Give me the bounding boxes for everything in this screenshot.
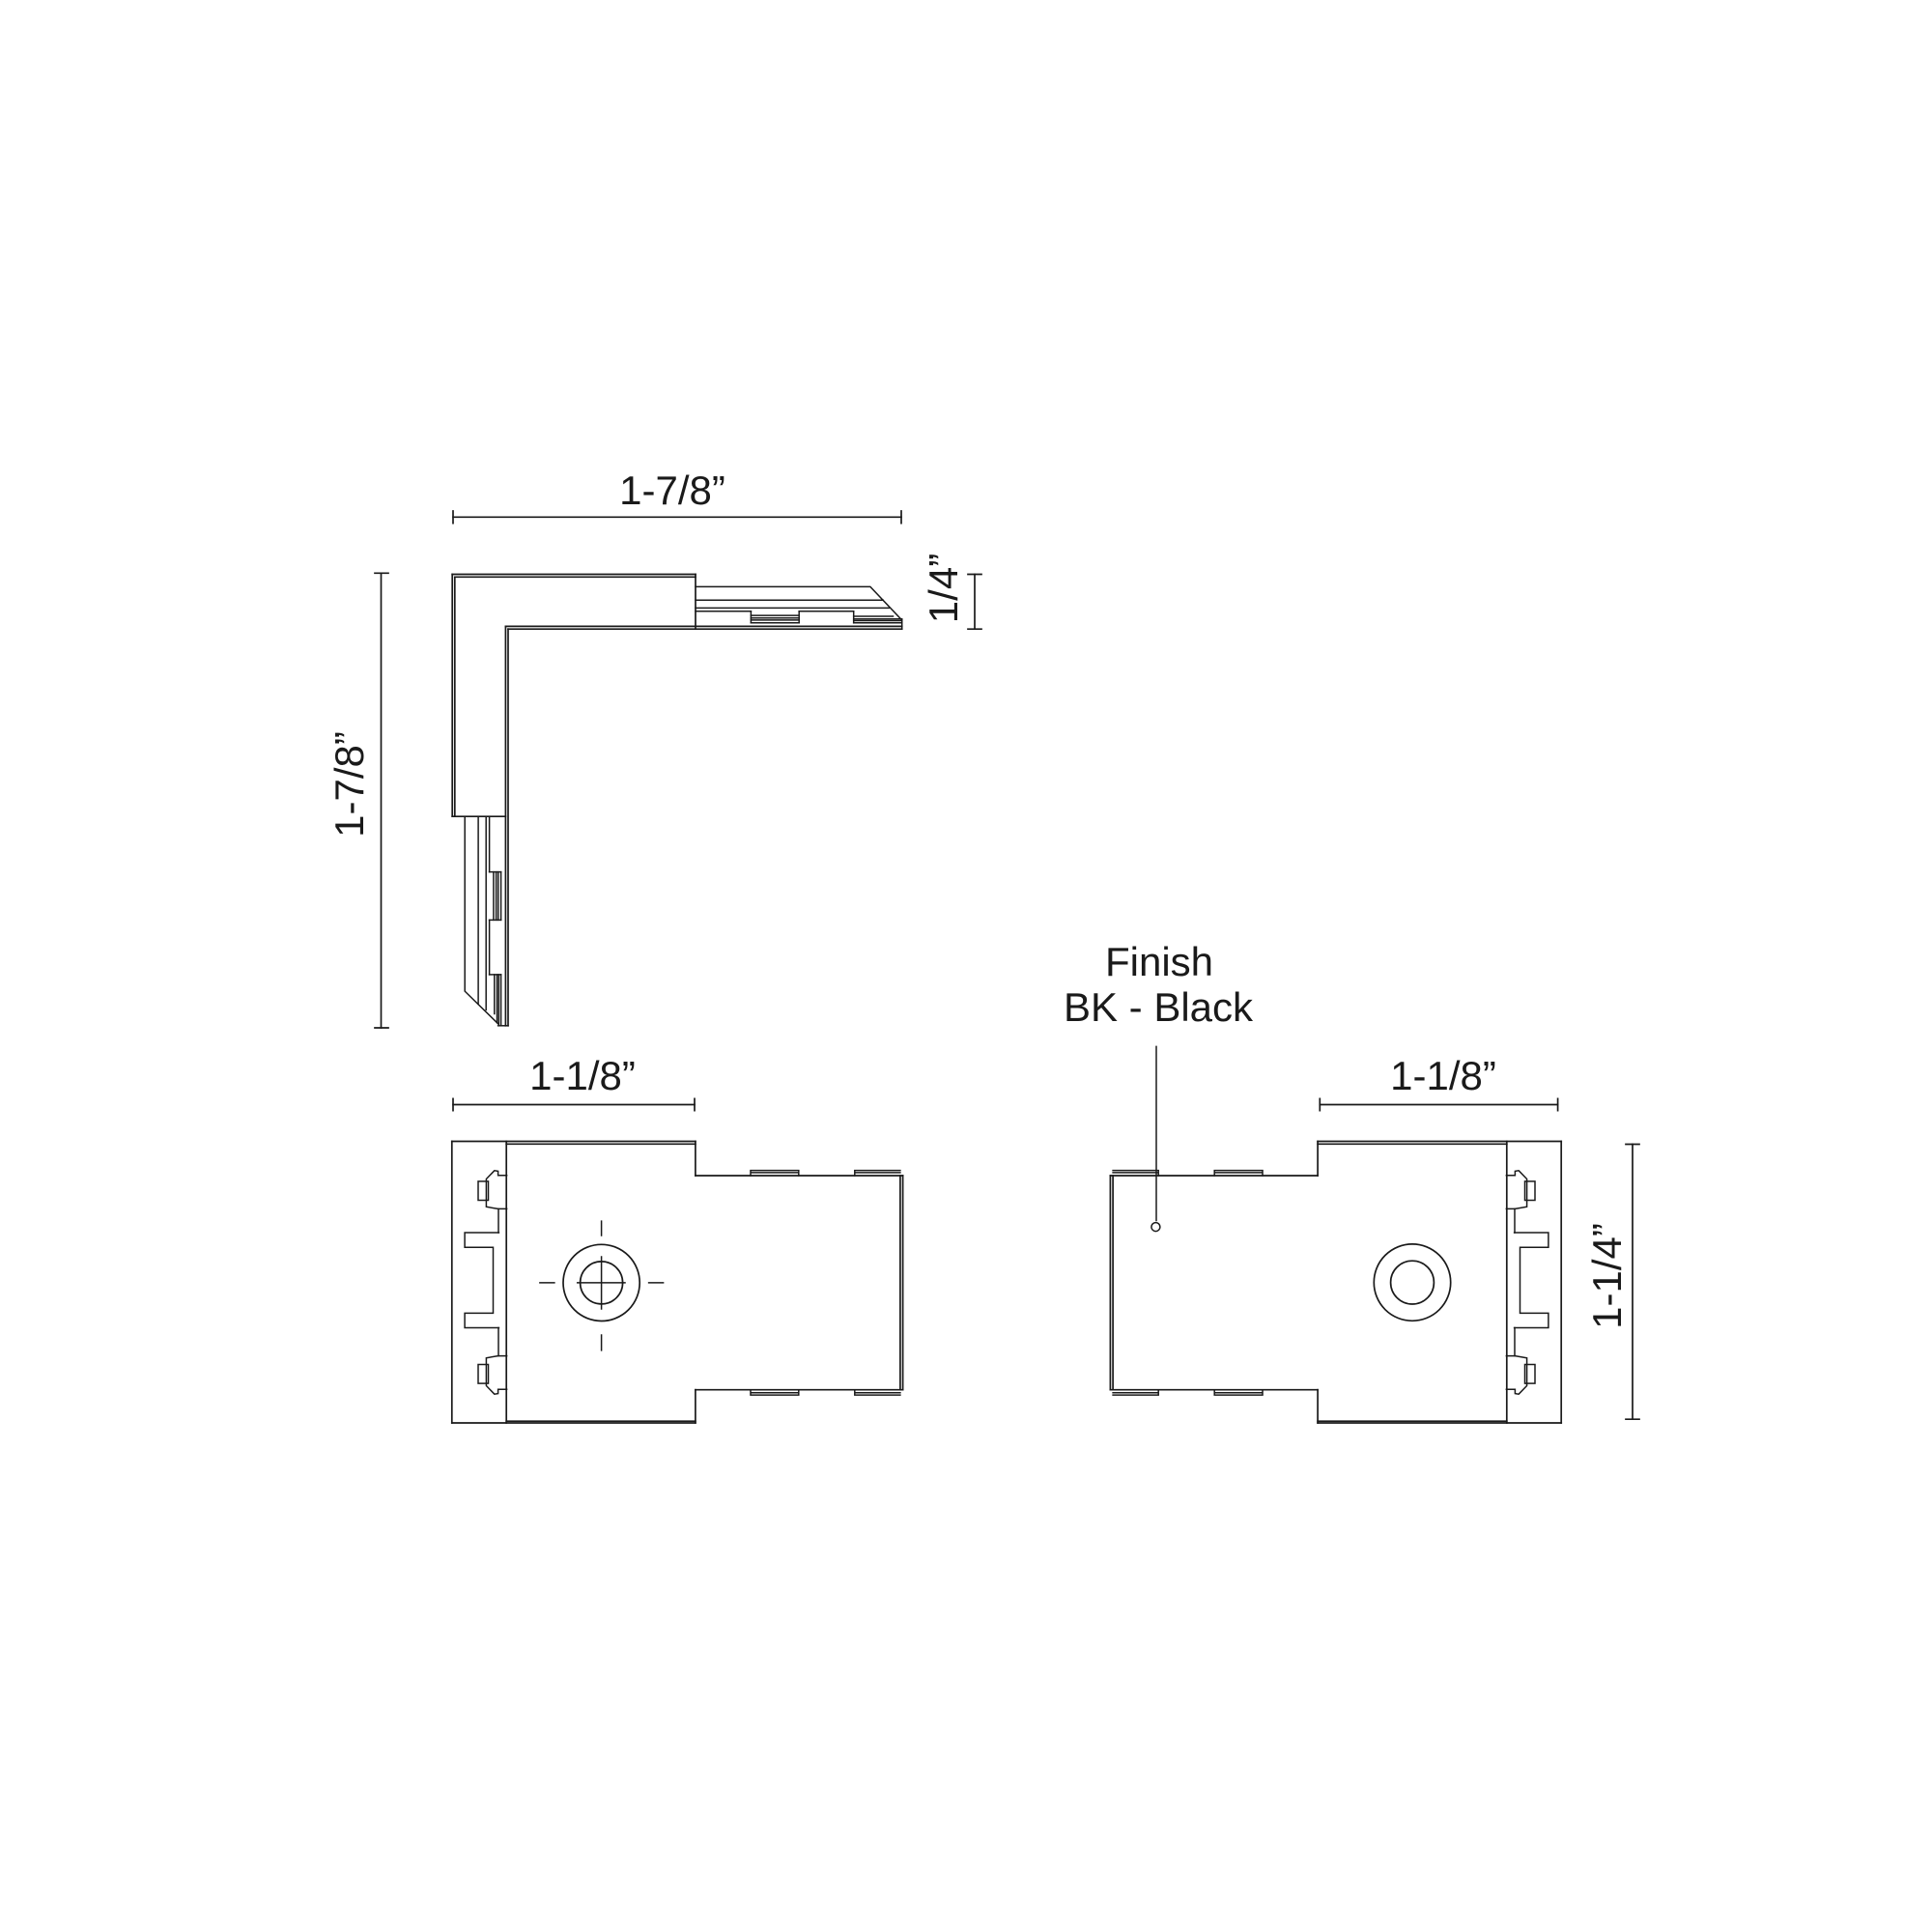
svg-text:1-7/8”: 1-7/8” — [619, 468, 725, 513]
svg-text:1-1/8”: 1-1/8” — [529, 1053, 636, 1098]
svg-text:1-7/8”: 1-7/8” — [327, 731, 372, 838]
svg-text:1-1/4”: 1-1/4” — [1584, 1223, 1630, 1329]
svg-text:1-1/8”: 1-1/8” — [1390, 1053, 1496, 1098]
svg-text:BK - Black: BK - Black — [1064, 984, 1254, 1030]
svg-text:1/4”: 1/4” — [921, 554, 966, 623]
svg-text:Finish: Finish — [1105, 939, 1213, 984]
